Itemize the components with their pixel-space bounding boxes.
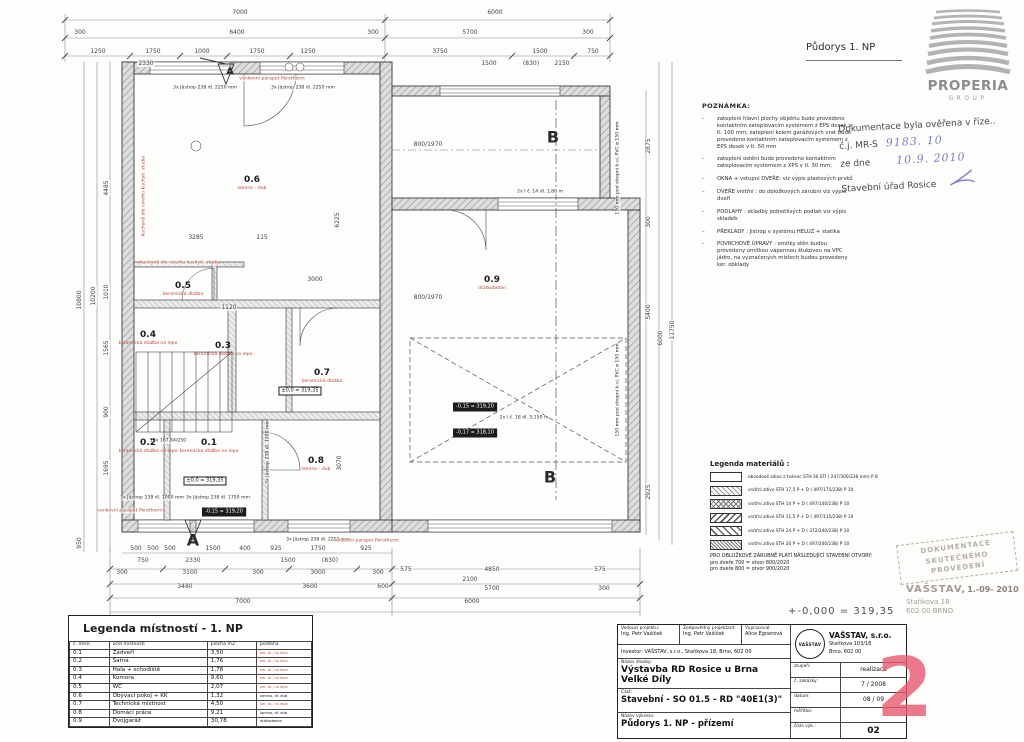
rooms-legend: Legenda místností - 1. NP č. mísn.účel m…	[68, 615, 313, 728]
dimension-label: 1695	[104, 459, 110, 476]
materials-rows: obvodové zdivo z tvárnic STH 30 STI ( 24…	[710, 472, 970, 550]
drawing-name: Půdorys 1. NP - přízemí	[621, 719, 734, 729]
dimension-label: 115	[255, 235, 268, 241]
dimension-label: 500	[129, 546, 142, 552]
material-label: vnitřní zdivo STH 24 P + D ( 372/240/238…	[748, 529, 849, 534]
plan-annotation: 150 mm pod stropní k-cí, PVC ø 150 mm	[615, 343, 620, 436]
company-stamp-name: VAŠSTAV,	[906, 584, 966, 595]
room-name-cell: Technická místnost	[109, 701, 207, 710]
room-number: 0.1	[180, 438, 239, 449]
responsible-designer: Ing. Petr Vašíček	[683, 631, 724, 637]
dimension-label: 7000	[231, 10, 248, 16]
room-number-cell: 0.5	[70, 683, 110, 692]
dimension-label: 900	[104, 405, 110, 418]
scale-label: měřítko:	[794, 709, 837, 714]
room-floor-cell: ker. dl., na lepe	[257, 666, 312, 675]
plan-annotation: 150 mm pod stropní k-cí, PVC ø 150 mm	[615, 121, 620, 214]
room-floor-type: keramická dlažba na lepe	[194, 352, 253, 358]
dimension-label: 500	[146, 546, 159, 552]
note-text: PODLAHY : skladby jednotlivých podlah vi…	[717, 209, 856, 223]
material-row: vnitřní zdivo STH 14 P + D ( 497/140/238…	[710, 499, 970, 509]
date-field-label: datum:	[794, 694, 837, 699]
dimension-label: (830)	[321, 558, 339, 564]
room-name-cell: WC	[109, 683, 207, 692]
rooms-table-header: podlaha	[257, 642, 312, 650]
room-floor-type: drátkobeton	[478, 286, 506, 292]
table-row: 0.9Dvojgaráž30,78drátkobeton	[70, 718, 312, 727]
title-block: Vedoucí projektu: Ing. Petr Vašíček Zodp…	[617, 624, 907, 739]
case-number-handwritten: 9183. 10	[885, 133, 943, 149]
room-floor-cell: drátkobeton	[257, 718, 312, 727]
room-number-cell: 0.3	[70, 666, 110, 675]
room-label: 0.5keramická dlažba	[163, 281, 203, 297]
room-area-cell: 4,50	[207, 701, 256, 710]
room-number-cell: 0.8	[70, 709, 110, 718]
dimension-label: 3070	[337, 454, 343, 471]
notes-title: POZNÁMKA:	[702, 102, 856, 110]
lead-designer: Ing. Petr Vašíček	[621, 631, 662, 637]
room-label: 0.2keramická dlažba na lepe	[119, 438, 178, 454]
note-item: –zateplení hlavní plochy objektu bude pr…	[702, 116, 856, 150]
dimension-label: 4850	[483, 567, 500, 573]
company-stamp-date: 1.-09- 2010	[967, 585, 1018, 594]
dimension-label: 6000	[658, 329, 664, 346]
level-mark: ±0,0 = 319,35	[183, 477, 226, 486]
note-text: PŘEKLADY : Jistrop v systému HELUZ + sta…	[717, 229, 840, 236]
company-stamp-city: 602 00 BRNO	[906, 607, 1019, 616]
note-text: zateplení ostění bude provedeno kontaktn…	[717, 156, 856, 170]
firm-name: VAŠSTAV, s.r.o.	[829, 630, 892, 641]
note-dash: –	[702, 156, 710, 170]
note-dash: –	[702, 189, 710, 203]
order-number-label: č. zakázky:	[794, 679, 837, 684]
room-floor-cell: ker. dl., na lepe	[257, 701, 312, 710]
room-number: 0.5	[163, 281, 203, 292]
plan-annotation: 3x Jästrop 238 dl. 2250 mm	[271, 85, 335, 90]
project-name-line1: Výstavba RD Rosice u Brna	[621, 665, 758, 675]
dimension-label: 3750	[431, 49, 448, 55]
company-stamp: VAŠSTAV, 1.-09- 2010 Staňkova 18 602 00 …	[906, 576, 1019, 616]
materials-legend-title: Legenda materiálů :	[710, 460, 970, 468]
rooms-table-header: účel místnosti	[109, 642, 207, 650]
dimension-label: 10200	[91, 285, 97, 306]
room-area-cell: 9,21	[207, 709, 256, 718]
drawing-title: Půdorys 1. NP	[806, 42, 875, 53]
material-label: obvodové zdivo z tvárnic STH 30 STI ( 24…	[748, 475, 878, 480]
room-name-cell: Zádveří	[109, 649, 207, 658]
vasstav-emblem: VAŠSTAV	[795, 629, 825, 659]
room-name-cell: Domácí práce	[109, 709, 207, 718]
level-mark: -0,15 = 319,20	[202, 508, 246, 517]
dimension-label: 2100	[461, 577, 478, 583]
room-number-cell: 0.1	[70, 649, 110, 658]
dimension-label: 1250	[89, 49, 106, 55]
investor: Investor: VAŠSTAV, s.r.o., Staňkova 18, …	[621, 649, 752, 655]
material-hatch-swatch	[710, 499, 742, 509]
dimension-label: 1565	[104, 339, 110, 356]
table-row: 0.8Domácí práce9,21lamino, dř. dub	[70, 709, 312, 718]
room-label: 0.9drátkobeton	[478, 275, 506, 291]
dimension-label: 575	[593, 567, 606, 573]
dimension-label: 10800	[77, 289, 83, 310]
revision-number-overlay: 2	[876, 648, 933, 730]
dimension-label: 300	[366, 30, 379, 36]
room-name-cell: Obývací pokoj + KK	[109, 692, 207, 701]
room-floor-cell: lamino, dř. dub	[257, 692, 312, 701]
properia-logo-arcs	[922, 8, 1014, 74]
dimension-label: 7000	[234, 599, 251, 605]
note-text: POVRCHOVÉ ÚPRAVY : omítky stěn budou pro…	[717, 241, 856, 269]
section-letter: B	[544, 468, 556, 487]
material-row: vnitřní zdivo STH 17,5 P + D ( 497/175/2…	[710, 486, 970, 496]
note-item: –DVEŘE vnitřní : do obložkových zárubní …	[702, 189, 856, 203]
dimension-label: 3100	[181, 570, 198, 576]
room-label: 0.6lamino - dub	[238, 175, 267, 191]
dimension-label: 300	[73, 30, 86, 36]
dimension-label: 6000	[463, 599, 480, 605]
title-underline	[806, 60, 902, 61]
note-item: –POVRCHOVÉ ÚPRAVY : omítky stěn budou pr…	[702, 241, 856, 269]
dimension-label: 950	[77, 536, 83, 549]
room-area-cell: 9,60	[207, 675, 256, 684]
room-number: 0.4	[119, 330, 178, 341]
properia-name: PROPERIA	[922, 78, 1014, 94]
room-area-cell: 3,50	[207, 649, 256, 658]
dimension-label: 1750	[144, 49, 161, 55]
room-floor-cell: ker. dl., na lepe	[257, 658, 312, 667]
note-dash: –	[702, 116, 710, 150]
room-label: 0.8lamino - dub	[302, 456, 331, 472]
room-area-cell: 30,78	[207, 718, 256, 727]
room-label: 0.4keramická dlažba na lepe	[119, 330, 178, 346]
room-number-cell: 0.2	[70, 658, 110, 667]
dimension-label: 5400	[646, 303, 652, 320]
room-floor-cell: lamino, dř. dub	[257, 709, 312, 718]
table-row: 0.5WC2,07ker. dl., na lepe	[70, 683, 312, 692]
room-label: 0.7keramická dlažba	[302, 368, 342, 384]
dimension-label: 1000	[193, 49, 210, 55]
drawing-sheet: 7000600030064003005700300125017501000175…	[0, 0, 1024, 742]
room-number: 0.2	[119, 438, 178, 449]
material-label: vnitřní zdivo STH 14 P + D ( 497/140/238…	[748, 502, 849, 507]
company-stamp-street: Staňkova 18	[906, 598, 1019, 607]
dimension-label: 750	[586, 49, 599, 55]
table-row: 0.6Obývací pokoj + KK1,32lamino, dř. dub	[70, 692, 312, 701]
notes-section: POZNÁMKA: –zateplení hlavní plochy objek…	[702, 102, 856, 275]
note-item: –OKNA + vstupní DVEŘE: viz výpis plastov…	[702, 176, 856, 183]
dimension-label: 6400	[228, 30, 245, 36]
dimension-label: 1500	[279, 558, 296, 564]
project-name-line2: Velké Díly	[621, 675, 671, 685]
dimension-label: 1500	[531, 49, 548, 55]
dimension-label: 2330	[137, 61, 154, 67]
material-hatch-swatch	[710, 540, 742, 550]
dimension-label: 4485	[104, 179, 110, 196]
note-dash: –	[702, 241, 710, 269]
table-row: 0.7Technická místnost4,50ker. dl., na le…	[70, 701, 312, 710]
room-floor-cell: ker. dl., na lepe	[257, 675, 312, 684]
note-text: DVEŘE vnitřní : do obložkových zárubní v…	[717, 189, 856, 203]
dimension-label: 5700	[461, 30, 478, 36]
dimension-label: 600	[376, 584, 389, 590]
material-label: vnitřní zdivo STH 17,5 P + D ( 497/175/2…	[748, 488, 853, 493]
material-hatch-swatch	[710, 526, 742, 536]
dimension-label: 11750	[670, 319, 676, 340]
elevation-note: +-0,000 = 319,35	[788, 606, 894, 617]
dimension-label: 300	[371, 570, 384, 576]
signature-icon	[944, 168, 979, 190]
material-row: obvodové zdivo z tvárnic STH 30 STI ( 24…	[710, 472, 970, 482]
dimension-label: 750	[136, 558, 149, 564]
level-mark: ±0,0 = 319,35	[278, 387, 321, 396]
material-hatch-swatch	[710, 472, 742, 482]
plan-annotation: 2x I č. 18 dl. 5,150 m	[500, 415, 549, 420]
dimension-label: 925	[359, 546, 372, 552]
section-letter: A	[187, 531, 199, 550]
dimension-label: 300	[251, 570, 264, 576]
material-row: vnitřní zdivo STH 11,5 P + D ( 497/115/2…	[710, 513, 970, 523]
note-item: –PODLAHY : skladby jednotlivých podlah v…	[702, 209, 856, 223]
dimension-label: 3600	[301, 584, 318, 590]
stage-label: stupeň:	[794, 664, 837, 669]
dimension-label: 2150	[553, 61, 570, 67]
room-area-cell: 1,78	[207, 666, 256, 675]
room-floor-type: keramická dlažba na lepe	[119, 341, 178, 347]
room-label: 0.1keramická dlažba na lepe	[180, 438, 239, 454]
dimension-label: 1500	[204, 546, 221, 552]
table-row: 0.4Komora9,60ker. dl., na lepe	[70, 675, 312, 684]
material-hatch-swatch	[710, 513, 742, 523]
room-label: 0.3keramická dlažba na lepe	[194, 341, 253, 357]
note-dash: –	[702, 176, 710, 183]
properia-logo: PROPERIA GROUP	[922, 8, 1014, 102]
dimension-label: 925	[269, 546, 282, 552]
room-area-cell: 1,76	[207, 658, 256, 667]
dimension-label: 6000	[486, 10, 503, 16]
dimension-label: 1250	[299, 49, 316, 55]
level-mark: -0,17 = 318,10	[453, 429, 497, 438]
dimension-label: 300	[581, 30, 594, 36]
room-floor-type: keramická dlažba na lepe	[119, 449, 178, 455]
room-number: 0.7	[302, 368, 342, 379]
dimension-label: 300	[597, 586, 610, 592]
room-name-cell: Komora	[109, 675, 207, 684]
note-dash: –	[702, 209, 710, 223]
material-label: vnitřní zdivo STH 11,5 P + D ( 497/115/2…	[748, 515, 853, 520]
room-floor-cell: ker. dl., na lepe	[257, 683, 312, 692]
dimension-label: 3480	[176, 584, 193, 590]
material-row: vnitřní zdivo STH 24 P + D ( 372/240/238…	[710, 526, 970, 536]
dimension-label: 400	[238, 546, 251, 552]
plan-annotation: kuchyně dle návrhu kuchyň. studia	[140, 260, 220, 265]
room-name-cell: Šatna	[109, 658, 207, 667]
sheet-number-label: číslo výk.:	[794, 724, 837, 729]
note-item: –zateplení ostění bude provedeno kontakt…	[702, 156, 856, 170]
rooms-table-header: plocha m2	[207, 642, 256, 650]
level-mark: -0,15 = 319,20	[453, 403, 497, 412]
dimension-label: 2330	[184, 558, 201, 564]
dimension-label: 5700	[483, 586, 500, 592]
plan-annotation: 3x Jästrop 238 dl. 1500 mm	[265, 420, 270, 484]
properia-group: GROUP	[922, 95, 1014, 102]
section-letter: B	[547, 128, 559, 147]
dimension-label: (830)	[522, 61, 540, 67]
dimension-label: 500	[163, 546, 176, 552]
room-number: 0.8	[302, 456, 331, 467]
room-number: 0.6	[238, 175, 267, 186]
room-number-cell: 0.6	[70, 692, 110, 701]
note-text: zateplení hlavní plochy objektu bude pro…	[717, 116, 856, 150]
room-floor-type: lamino - dub	[238, 186, 267, 192]
plan-annotation: venkovní parapet Porotherm	[333, 538, 398, 543]
dimension-label: 6225	[335, 211, 341, 228]
part-name: Stavební - SO 01.5 - RD "40E1(3)"	[621, 695, 782, 705]
room-area-cell: 1,32	[207, 692, 256, 701]
dimension-label: 800/1970	[413, 142, 444, 148]
room-number-cell: 0.4	[70, 675, 110, 684]
note-text: OKNA + vstupní DVEŘE: viz výpis plastový…	[717, 176, 853, 183]
rooms-table-header: č. mísn.	[70, 642, 110, 650]
room-floor-type: keramická dlažba na lepe	[180, 449, 239, 455]
room-name-cell: Dvojgaráž	[109, 718, 207, 727]
dimension-label: 2875	[646, 137, 652, 154]
note-dash: –	[702, 229, 710, 236]
room-floor-type: lamino - dub	[302, 467, 331, 473]
room-number-cell: 0.9	[70, 718, 110, 727]
rooms-legend-title: Legenda místností - 1. NP	[69, 616, 312, 641]
dimension-label: 1010	[104, 283, 110, 300]
notes-list: –zateplení hlavní plochy objektu bude pr…	[702, 116, 856, 269]
plan-annotation: kuchyně dle návrhu kuchyň. studia	[141, 156, 146, 236]
room-number: 0.9	[478, 275, 506, 286]
dimension-label: 1750	[248, 49, 265, 55]
plan-annotation: 3x Jästrop 238 dl. 1750 mm	[186, 495, 250, 500]
room-area-cell: 2,07	[207, 683, 256, 692]
table-row: 0.1Zádveří3,50ker. dl., na lepe	[70, 649, 312, 658]
room-number: 0.3	[194, 341, 253, 352]
room-name-cell: Hala + schodiště	[109, 666, 207, 675]
room-floor-cell: ker. dl., na lepe	[257, 649, 312, 658]
dimension-label: 1500	[480, 61, 497, 67]
rooms-legend-table: č. mísn.účel místnostiplocha m2podlaha 0…	[69, 641, 312, 727]
room-number-cell: 0.7	[70, 701, 110, 710]
verification-stamp: Dokumentace byla ověřena v říze.. č.j. M…	[838, 115, 1024, 200]
note-item: –PŘEKLADY : Jistrop v systému HELUZ + st…	[702, 229, 856, 236]
table-row: 0.2Šatna1,76ker. dl., na lepe	[70, 658, 312, 667]
dimension-label: 575	[399, 567, 412, 573]
plan-annotation: 2x I č. 14 dl. 1,80 m	[517, 189, 563, 194]
drafted-by: Alice Egnerová	[745, 631, 782, 637]
plan-annotation: venkovní parapet Porotherm	[97, 508, 162, 513]
dimension-label: 2925	[646, 483, 652, 500]
dimension-label: 300	[115, 570, 128, 576]
plan-annotation: venkovní parapet Porotherm	[239, 76, 304, 81]
section-letter: A	[226, 67, 234, 78]
plan-annotation: 3x Jästrop 238 dl. 2250 mm	[173, 85, 237, 90]
date-handwritten: 10.9. 2010	[896, 150, 966, 167]
dimension-label: 1120	[220, 305, 237, 311]
plan-labels-layer: 7000600030064003005700300125017501000175…	[0, 0, 700, 620]
room-floor-type: keramická dlažba	[302, 379, 342, 385]
dimension-label: 3285	[187, 235, 204, 241]
table-row: 0.3Hala + schodiště1,78ker. dl., na lepe	[70, 666, 312, 675]
dimension-label: 1750	[309, 546, 326, 552]
material-hatch-swatch	[710, 486, 742, 496]
dimension-label: 800/1970	[413, 295, 444, 301]
dimension-label: 3000	[306, 277, 323, 283]
room-floor-type: keramická dlažba	[163, 292, 203, 298]
material-label: vnitřní zdivo STH 20 P + D ( 497/200/238…	[748, 542, 849, 547]
dimension-label: 300	[646, 215, 652, 228]
dimension-label: 3000	[309, 570, 326, 576]
plan-annotation: 3x Jästrop 238 dl. 1000 mm	[120, 495, 184, 500]
